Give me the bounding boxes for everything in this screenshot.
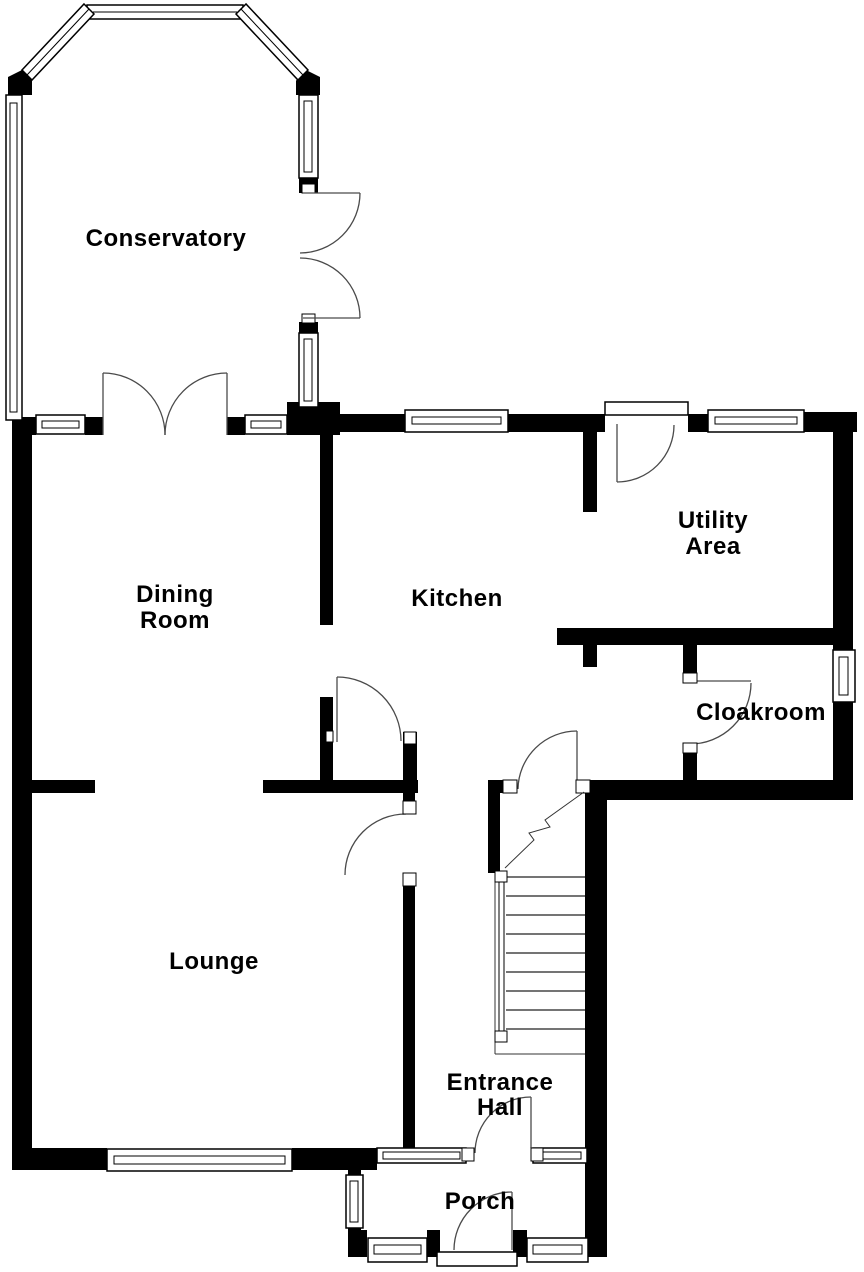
room-label-utility-area: Area bbox=[685, 533, 741, 560]
door-jamb bbox=[576, 780, 590, 793]
wall-segment bbox=[683, 645, 697, 673]
window-glass-line bbox=[241, 9, 303, 75]
back-door-closed bbox=[605, 402, 688, 415]
wall-segment bbox=[227, 417, 245, 435]
door-swing-arc bbox=[165, 373, 227, 435]
door-jamb bbox=[683, 743, 697, 753]
window-inner bbox=[715, 417, 797, 424]
wall-segment bbox=[348, 1230, 367, 1257]
window-inner bbox=[251, 421, 281, 428]
stair-direction-line bbox=[505, 792, 584, 868]
wall-segment bbox=[488, 780, 503, 793]
door-swing-arc bbox=[103, 373, 165, 435]
door-swing-arc bbox=[518, 731, 577, 789]
door-jamb bbox=[503, 780, 517, 793]
wall-segment bbox=[583, 645, 597, 667]
wall-segment bbox=[683, 753, 697, 800]
staircase bbox=[495, 792, 585, 1054]
room-label-entrance-hall: Entrance bbox=[447, 1069, 554, 1096]
wall-segment bbox=[488, 793, 500, 873]
wall-segment bbox=[688, 414, 708, 432]
room-label-kitchen: Kitchen bbox=[411, 585, 503, 612]
wall-segment bbox=[292, 1148, 377, 1170]
floor-plan-drawing: Conservatory Dining Room Kitchen Utility… bbox=[0, 0, 864, 1272]
room-label-lounge: Lounge bbox=[169, 948, 259, 975]
wall-segment bbox=[12, 417, 32, 1170]
door-jamb bbox=[403, 801, 416, 814]
floor-plan: Conservatory Dining Room Kitchen Utility… bbox=[0, 0, 864, 1272]
window-inner bbox=[10, 103, 17, 412]
wall-segment bbox=[32, 780, 95, 793]
window-inner bbox=[383, 1152, 460, 1159]
room-label-entrance-hall: Hall bbox=[477, 1094, 523, 1121]
wall-segment bbox=[833, 430, 853, 650]
door-jamb bbox=[403, 873, 416, 886]
window-inner bbox=[350, 1181, 358, 1222]
window-inner bbox=[839, 657, 848, 695]
window-inner bbox=[533, 1245, 582, 1254]
room-labels: Conservatory Dining Room Kitchen Utility… bbox=[86, 225, 826, 1215]
wall-segment bbox=[585, 780, 853, 800]
room-label-utility-area: Utility bbox=[678, 507, 748, 534]
window-inner bbox=[304, 339, 312, 401]
wall-segment bbox=[12, 1148, 107, 1170]
stair-newel-post bbox=[495, 1031, 507, 1042]
window-inner bbox=[114, 1156, 285, 1164]
window-inner bbox=[42, 421, 79, 428]
wall-segment bbox=[85, 417, 103, 435]
wall-segment bbox=[403, 884, 415, 1148]
wall-segment bbox=[320, 432, 333, 625]
wall-segment bbox=[804, 412, 857, 432]
wall-segment bbox=[585, 780, 607, 1257]
window-inner bbox=[412, 417, 501, 424]
room-label-porch: Porch bbox=[445, 1188, 516, 1215]
room-label-dining-room: Dining bbox=[136, 581, 214, 608]
wall-segment bbox=[320, 697, 333, 793]
wall-segment bbox=[583, 414, 597, 512]
doors bbox=[103, 193, 751, 1250]
door-jamb bbox=[462, 1148, 474, 1161]
door-jamb bbox=[302, 184, 315, 193]
door-jamb bbox=[531, 1148, 543, 1161]
door-jamb bbox=[326, 731, 333, 742]
door-jamb bbox=[683, 673, 697, 683]
room-label-cloakroom: Cloakroom bbox=[696, 699, 826, 726]
stair-newel-post bbox=[495, 871, 507, 882]
wall-segment bbox=[557, 628, 853, 645]
window-inner bbox=[539, 1152, 581, 1159]
door-swing-arc bbox=[337, 677, 401, 741]
room-label-conservatory: Conservatory bbox=[86, 225, 247, 252]
door-swing-arc bbox=[345, 814, 406, 875]
wall-segment bbox=[299, 322, 318, 333]
wall-segment bbox=[263, 780, 418, 793]
door-swing-arc bbox=[300, 258, 360, 318]
room-label-dining-room: Room bbox=[140, 607, 210, 634]
wall-segment bbox=[833, 702, 853, 780]
window-inner bbox=[374, 1245, 421, 1254]
stair-handrail bbox=[499, 882, 504, 1031]
door-swing-arc bbox=[617, 425, 674, 482]
window-glass-line bbox=[27, 9, 89, 75]
door-jamb bbox=[404, 732, 416, 744]
front-door-threshold bbox=[437, 1252, 517, 1266]
window-inner bbox=[304, 101, 312, 172]
door-swing-arc bbox=[300, 193, 360, 253]
